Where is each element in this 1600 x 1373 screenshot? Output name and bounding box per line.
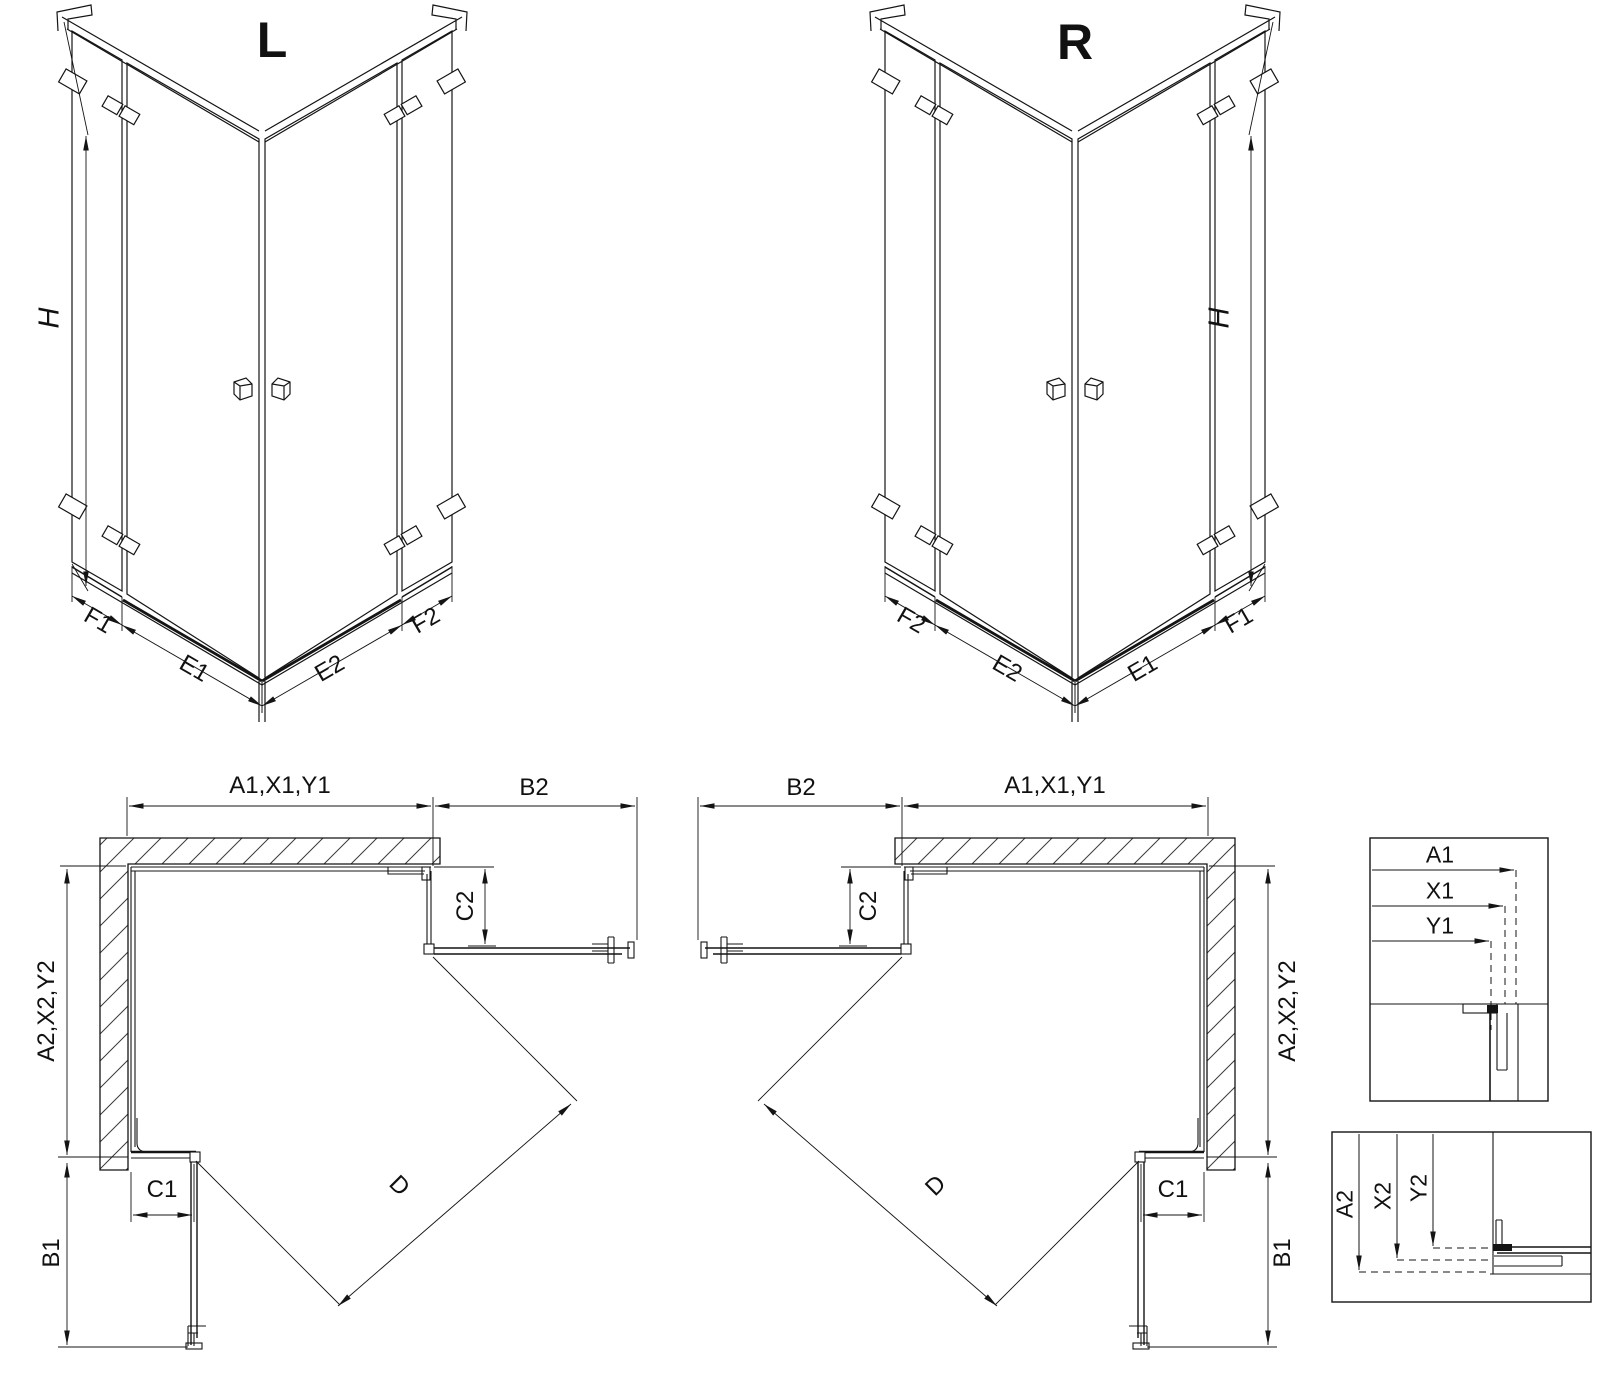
plan-l-dim-b1: B1: [40, 1238, 64, 1267]
iso-l-dim-e1: E1: [175, 651, 212, 686]
plan-r-dim-b1: B1: [1271, 1238, 1295, 1267]
label-layer: LHF1E1E2F2RHF2E2E1F1A1,X1,Y1B2C2A2,X2,Y2…: [0, 0, 1600, 1373]
iso-l-dim-f1: F1: [80, 604, 116, 639]
iso-l-dim-e2: E2: [311, 651, 348, 686]
iso-r-dim-f1: F1: [1221, 604, 1257, 639]
detail-bottom-dim-x2: X2: [1372, 1182, 1395, 1210]
detail-bottom-dim-a2: A2: [1334, 1190, 1357, 1218]
plan-l-dim-a2x2y2: A2,X2,Y2: [35, 960, 59, 1061]
iso-l-title: L: [257, 15, 288, 65]
detail-top-dim-y1: Y1: [1426, 915, 1454, 938]
iso-l-dim-f2: F2: [408, 604, 444, 639]
drawing-canvas: LHF1E1E2F2RHF2E2E1F1A1,X1,Y1B2C2A2,X2,Y2…: [0, 0, 1600, 1373]
detail-top-dim-x1: X1: [1426, 880, 1454, 903]
iso-l-dim-h: H: [36, 308, 65, 329]
plan-r-dim-b2: B2: [786, 776, 815, 800]
iso-r-dim-e1: E1: [1124, 651, 1161, 686]
plan-l-dim-b2: B2: [519, 776, 548, 800]
plan-r-dim-c2: C2: [857, 891, 881, 922]
plan-l-dim-a1x1y1: A1,X1,Y1: [229, 774, 330, 798]
plan-r-dim-a2x2y2: A2,X2,Y2: [1276, 960, 1300, 1061]
iso-r-dim-h: H: [1206, 308, 1235, 329]
iso-r-title: R: [1057, 17, 1093, 67]
plan-l-dim-c2: C2: [454, 891, 478, 922]
plan-r-dim-d: D: [921, 1171, 950, 1200]
detail-top-dim-a1: A1: [1426, 844, 1454, 867]
plan-l-dim-c1: C1: [147, 1178, 178, 1202]
plan-r-dim-c1: C1: [1158, 1178, 1189, 1202]
iso-r-dim-f2: F2: [893, 604, 929, 639]
detail-bottom-dim-y2: Y2: [1408, 1174, 1431, 1202]
iso-r-dim-e2: E2: [988, 651, 1025, 686]
plan-r-dim-a1x1y1: A1,X1,Y1: [1004, 774, 1105, 798]
plan-l-dim-d: D: [384, 1171, 413, 1200]
